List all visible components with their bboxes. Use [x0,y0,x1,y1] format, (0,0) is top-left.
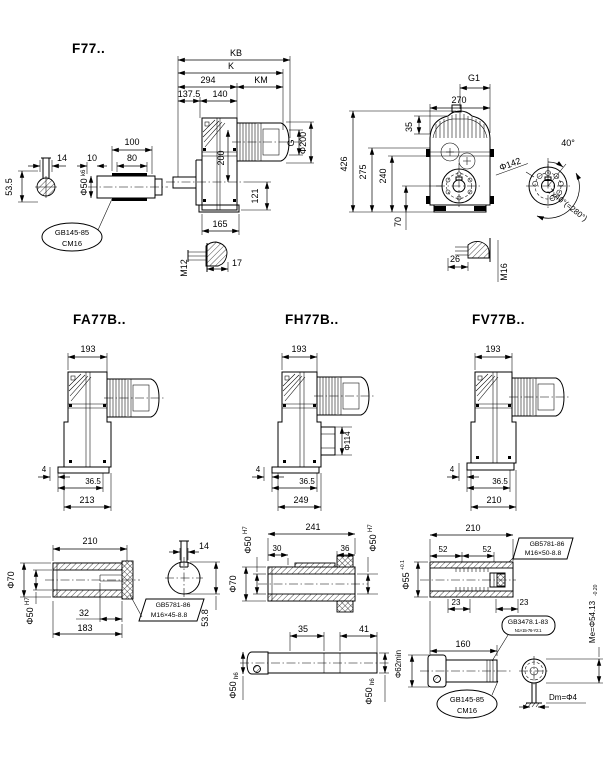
dim-52-right: 52 [483,545,492,554]
dim-165: 165 [212,219,227,229]
dim-36-5: 36.5 [492,477,508,486]
plug-standard: GB145-85 [450,695,484,704]
dim-dia70: Φ70 [6,571,16,588]
dim-249: 249 [293,495,308,505]
fh-shaft-details: 241 Φ50 H7 Φ50 H7 30 36 Φ70 35 41 Φ50 h6 [228,522,390,705]
svg-text:Φ50: Φ50 [243,536,253,553]
dim-35: 35 [298,624,308,634]
dim-275: 275 [358,164,368,179]
dim-241: 241 [305,522,320,532]
dim-dia114: Φ114 [343,431,352,451]
dim-me: Me=Φ54.13 -0.20 [588,584,599,643]
dim-kb: KB [230,48,242,58]
f77-breather-side-detail: M12 17 [179,242,242,277]
section-f77: F77.. 14 53.5 100 80 10 [4,41,589,282]
svg-text:h6: h6 [370,678,376,685]
svg-text:Φ50: Φ50 [364,687,374,704]
svg-text:Φ50: Φ50 [79,178,89,195]
dim-4: 4 [256,465,261,474]
dim-80: 80 [127,153,137,163]
dim-23-left: 23 [452,598,461,607]
dim-32: 32 [79,608,89,618]
dim-shaft-left: Φ50 h6 [228,672,240,699]
dim-dia70: Φ70 [228,575,238,592]
spline-spec: N1×15-76-Y2.1 [515,628,543,633]
dim-193: 193 [485,344,500,354]
bolt-standard: GB5781-86 [530,541,565,548]
svg-text:Φ50: Φ50 [368,534,378,551]
plug-type: CM16 [457,706,477,715]
section-fh77b: FH77B.. 193 Φ114 4 36.5 249 [252,312,376,511]
section-title-f77: F77.. [72,41,105,56]
svg-text:H7: H7 [25,597,31,605]
dim-dia142: Φ142 [492,154,528,175]
dim-bore-left: Φ50 H7 [243,526,253,554]
f77-front-view: G1 270 35 426 275 240 70 [339,73,494,230]
f77-shaft-end-view: 14 53.5 [4,153,67,202]
svg-text:Φ55: Φ55 [401,572,411,589]
svg-text:+0.1: +0.1 [400,560,406,570]
dim-4: 4 [450,465,455,474]
spline-standard: GB3478.1-83 [508,619,549,626]
dim-36: 36 [341,544,350,553]
dim-35: 35 [404,122,414,132]
dim-100: 100 [124,137,139,147]
dim-36-5: 36.5 [85,477,101,486]
dim-193: 193 [291,344,306,354]
dim-210: 210 [465,523,480,533]
svg-text:h6: h6 [234,672,240,679]
dim-bore-dia: Φ50 H7 [25,597,35,625]
plug-type: CM16 [62,239,82,248]
technical-drawing: F77.. 14 53.5 100 80 10 [0,0,608,761]
dim-shaft-diameter: Φ50 k6 [79,169,89,196]
dim-dm: Dm=Φ4 [549,693,577,702]
bolt-spec: M16×45-8.8 [151,612,188,619]
dim-53-8: 53.8 [200,609,210,627]
dim-26: 26 [450,254,460,264]
dim-m12: M12 [179,259,189,277]
section-fa77b: FA77B.. 193 4 36.5 213 [38,312,166,511]
dim-30: 30 [273,544,282,553]
dim-41: 41 [359,624,369,634]
plug-standard: GB145-85 [55,228,89,237]
dim-160: 160 [455,639,470,649]
dim-210: 210 [486,495,501,505]
dim-10: 10 [87,153,97,163]
dim-210: 210 [82,536,97,546]
dim-52-left: 52 [439,545,448,554]
dim-4: 4 [42,465,47,474]
dim-shaft-right: Φ50 h6 [364,678,376,705]
dim-dia200: Φ200 [298,132,308,154]
svg-text:k6: k6 [81,169,87,176]
svg-text:Φ50: Φ50 [228,681,238,698]
dim-137-5: 137.5 [178,89,201,99]
bolt-spec: M16×50-8.8 [525,550,562,557]
dim-270: 270 [451,95,466,105]
dim-g1: G1 [468,73,480,83]
section-fv77b: FV77B.. 193 4 36.5 210 [447,312,571,511]
dim-426: 426 [339,156,349,171]
dim-121: 121 [250,188,260,203]
dim-dia62min: Φ62min [394,650,403,678]
f77-side-view: 200 121 165 KB K 294 KM 137.5 140 G Φ200 [166,48,314,235]
dim-17: 17 [232,258,242,268]
svg-text:H7: H7 [368,524,374,532]
dim-70: 70 [393,217,403,227]
dim-bore-dia: Φ55 +0.1 [400,560,411,590]
section-title-fh77b: FH77B.. [285,312,339,327]
dim-140: 140 [212,89,227,99]
section-title-fv77b: FV77B.. [472,312,525,327]
dim-193: 193 [80,344,95,354]
dim-240: 240 [378,168,388,183]
dim-g: G [286,139,296,146]
dim-40deg: 40° [561,138,575,148]
dim-53-5: 53.5 [4,178,14,196]
drawing-page: F77.. 14 53.5 100 80 10 [0,0,608,761]
dim-23-right: 23 [520,598,529,607]
dim-m16: M16 [499,263,509,281]
dim-k: K [228,61,234,71]
svg-text:-0.20: -0.20 [593,584,599,596]
fv-shaft-details: 210 52 52 GB5781-86 M16×50-8.8 Φ55 +0.1 … [394,523,603,718]
dim-km: KM [254,75,268,85]
dim-14: 14 [199,541,209,551]
f77-bolt-circle-detail: 40° Φ142 7x40°(=280°) [492,138,589,223]
f77-breather-front-detail: 26 M16 [448,238,509,282]
dim-bore-right: Φ50 H7 [368,524,378,552]
dim-213: 213 [79,495,94,505]
section-title-fa77b: FA77B.. [73,312,126,327]
dim-183: 183 [77,623,92,633]
dim-36-5: 36.5 [299,477,315,486]
dim-294: 294 [200,75,215,85]
svg-text:H7: H7 [243,526,249,534]
svg-text:Φ50: Φ50 [25,607,35,624]
svg-text:Me=Φ54.13: Me=Φ54.13 [588,600,597,643]
dim-200: 200 [216,150,226,165]
bolt-standard: GB5781-86 [156,602,191,609]
dim-14: 14 [57,153,67,163]
fa-hollow-shaft-detail: 210 Φ70 Φ50 H7 32 183 GB5781-86 M16×45-8… [6,536,220,638]
